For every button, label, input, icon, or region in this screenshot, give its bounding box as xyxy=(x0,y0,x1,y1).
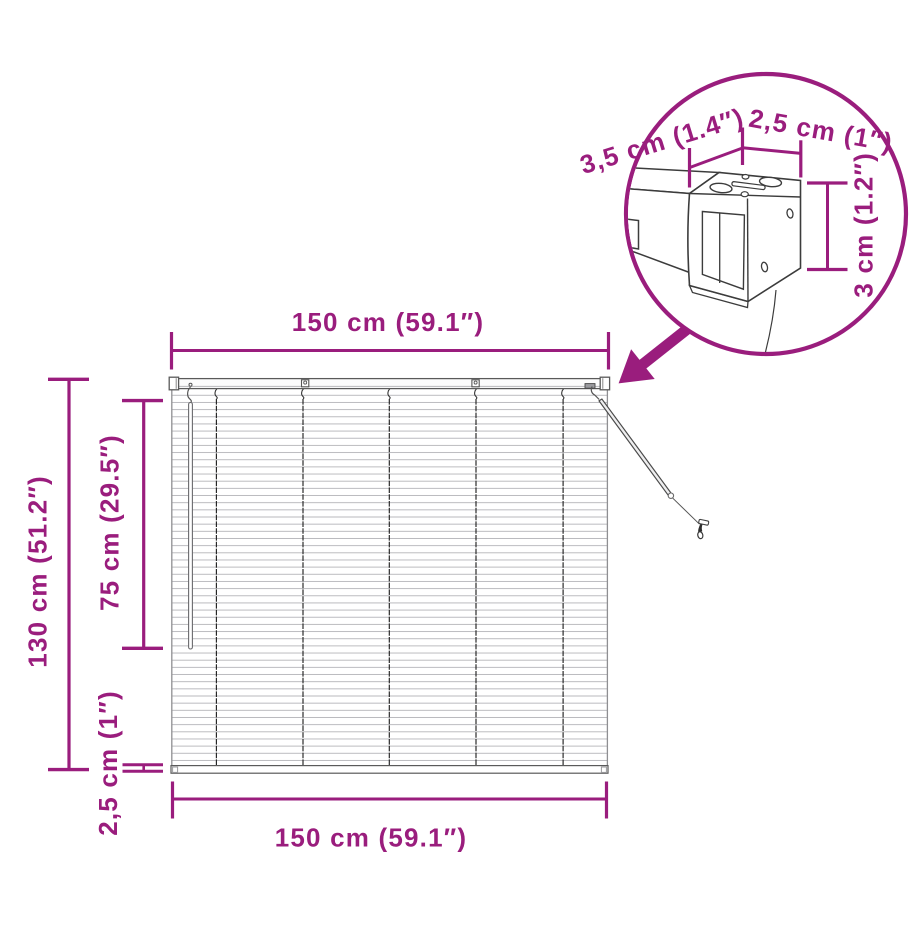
svg-text:75 cm (29.5″): 75 cm (29.5″) xyxy=(95,434,125,611)
svg-text:2,5 cm (1″): 2,5 cm (1″) xyxy=(93,690,123,836)
svg-text:130 cm (51.2″): 130 cm (51.2″) xyxy=(23,475,53,668)
svg-text:150 cm (59.1″): 150 cm (59.1″) xyxy=(292,307,485,337)
svg-text:3 cm (1.2″): 3 cm (1.2″) xyxy=(849,152,879,298)
svg-text:150 cm (59.1″): 150 cm (59.1″) xyxy=(275,823,468,853)
